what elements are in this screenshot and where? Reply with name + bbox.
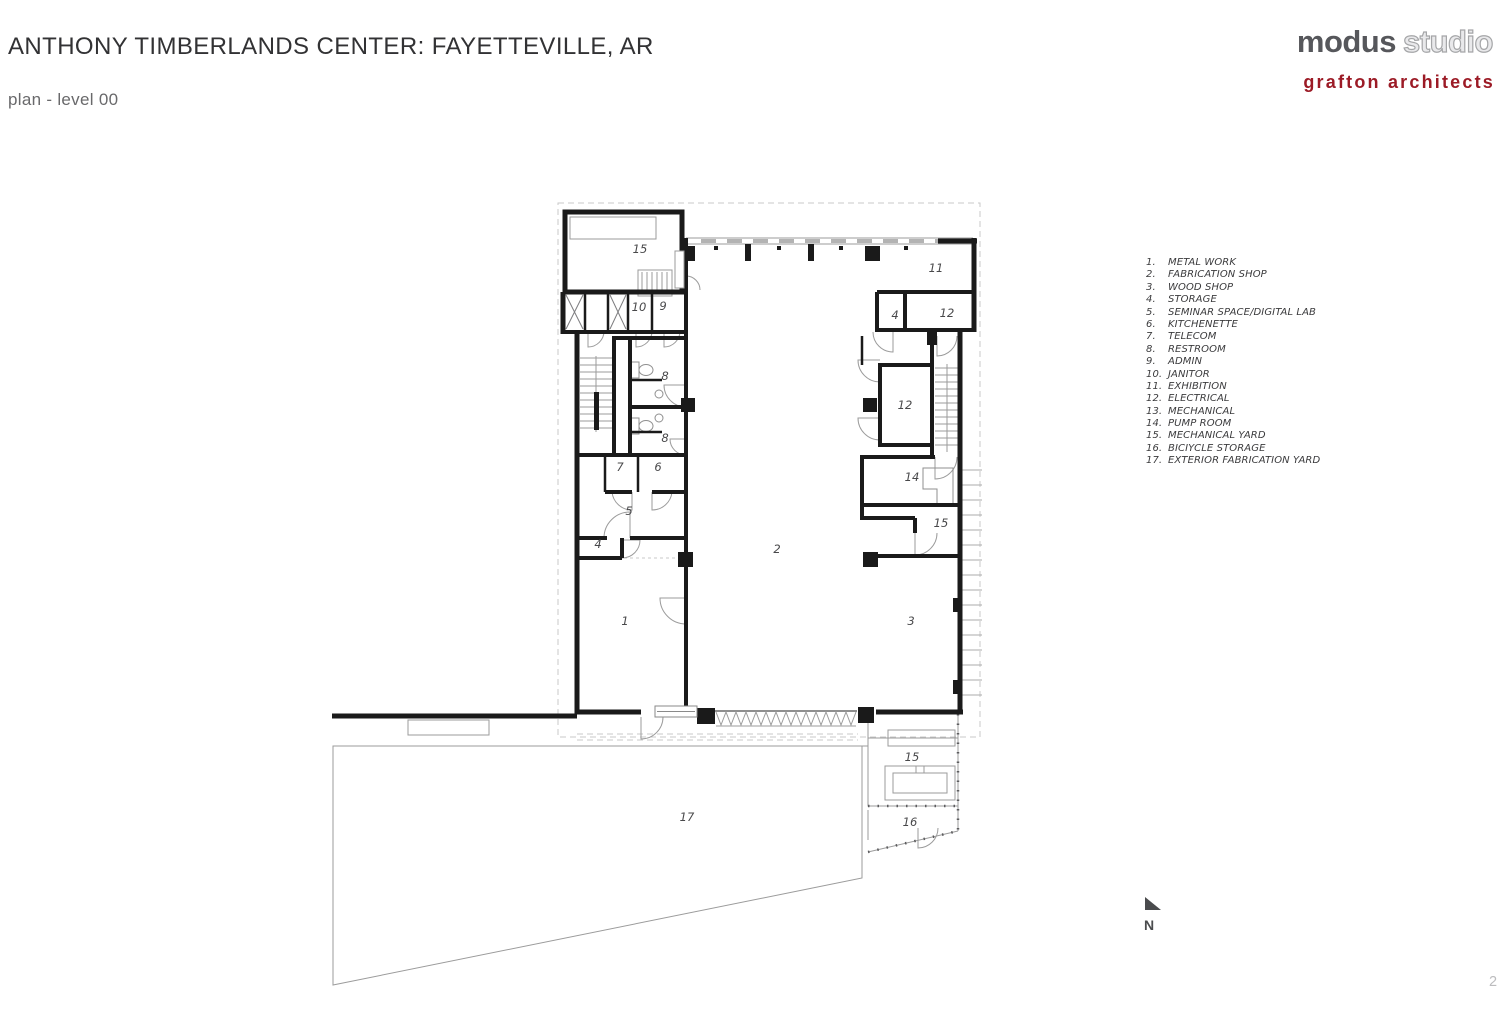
room-label: 16: [903, 815, 918, 829]
room-label: 15: [633, 242, 648, 256]
floor-plan-drawing: 1511109412812876145154213151716: [0, 0, 1512, 1027]
door-arcs: [588, 276, 957, 848]
north-arrow: N: [1144, 896, 1168, 933]
legend-item: 12.ELECTRICAL: [1146, 393, 1320, 405]
legend-item: 14.PUMP ROOM: [1146, 418, 1320, 430]
legend-item: 2.FABRICATION SHOP: [1146, 269, 1320, 281]
legend-item: 15.MECHANICAL YARD: [1146, 430, 1320, 442]
north-arrow-icon: [1144, 896, 1164, 912]
room-label: 6: [654, 460, 661, 474]
legend-item: 16.BICIYCLE STORAGE: [1146, 443, 1320, 455]
windows: [655, 251, 697, 717]
yard-lines: [333, 712, 958, 985]
legend-item-label: RESTROOM: [1168, 344, 1226, 356]
legend-item: 4.STORAGE: [1146, 294, 1320, 306]
legend-item: 3.WOOD SHOP: [1146, 282, 1320, 294]
legend-item-label: BICIYCLE STORAGE: [1168, 443, 1266, 455]
legend-item: 1.METAL WORK: [1146, 257, 1320, 269]
room-label: 4: [594, 537, 601, 551]
legend-item-label: FABRICATION SHOP: [1168, 269, 1267, 281]
legend-item-label: MECHANICAL YARD: [1168, 430, 1266, 442]
legend-item-number: 5.: [1146, 307, 1168, 319]
legend-item-number: 11.: [1146, 381, 1168, 393]
room-label: 17: [680, 810, 695, 824]
legend-item-label: SEMINAR SPACE/DIGITAL LAB: [1168, 307, 1316, 319]
legend-item-label: STORAGE: [1168, 294, 1217, 306]
north-window-wall: [686, 238, 973, 244]
east-louver-ticks: [962, 470, 982, 695]
room-label: 9: [659, 299, 666, 313]
legend-item-number: 15.: [1146, 430, 1168, 442]
legend-item: 11.EXHIBITION: [1146, 381, 1320, 393]
legend-item: 8.RESTROOM: [1146, 344, 1320, 356]
room-label: 8: [661, 431, 668, 445]
truss-door: [715, 711, 857, 726]
room-label: 3: [907, 614, 914, 628]
room-label: 12: [898, 398, 913, 412]
legend-item: 10.JANITOR: [1146, 369, 1320, 381]
room-label: 1: [621, 614, 628, 628]
legend-item-number: 12.: [1146, 393, 1168, 405]
legend-item-label: TELECOM: [1168, 331, 1217, 343]
legend-item-number: 1.: [1146, 257, 1168, 269]
screen-wall-ticks: [868, 714, 958, 852]
legend-item-label: ADMIN: [1168, 356, 1202, 368]
legend-item: 13.MECHANICAL: [1146, 406, 1320, 418]
legend-item-label: MECHANICAL: [1168, 406, 1235, 418]
louver-x-braces: [566, 295, 626, 329]
legend-item-number: 6.: [1146, 319, 1168, 331]
legend-item-label: JANITOR: [1168, 369, 1210, 381]
legend-item-number: 9.: [1146, 356, 1168, 368]
legend-item-label: KITCHENETTE: [1168, 319, 1238, 331]
legend-item-number: 16.: [1146, 443, 1168, 455]
legend-item: 6.KITCHENETTE: [1146, 319, 1320, 331]
legend-item-label: EXHIBITION: [1168, 381, 1227, 393]
legend-item-label: METAL WORK: [1168, 257, 1236, 269]
legend-item-number: 14.: [1146, 418, 1168, 430]
room-label: 10: [632, 300, 647, 314]
room-label: 11: [929, 261, 944, 275]
room-label: 15: [905, 750, 920, 764]
room-label: 7: [616, 460, 624, 474]
legend-item-label: WOOD SHOP: [1168, 282, 1233, 294]
legend-item-number: 7.: [1146, 331, 1168, 343]
legend-item-label: EXTERIOR FABRICATION YARD: [1168, 455, 1320, 467]
legend-item-number: 2.: [1146, 269, 1168, 281]
room-label: 15: [934, 516, 949, 530]
room-label: 4: [891, 308, 898, 322]
legend-item-number: 10.: [1146, 369, 1168, 381]
legend-item-label: ELECTRICAL: [1168, 393, 1230, 405]
room-label: 8: [661, 369, 668, 383]
room-label: 2: [773, 542, 780, 556]
room-legend: 1.METAL WORK2.FABRICATION SHOP3.WOOD SHO…: [1146, 257, 1320, 468]
room-label: 14: [905, 470, 920, 484]
legend-item: 5.SEMINAR SPACE/DIGITAL LAB: [1146, 307, 1320, 319]
legend-item: 9.ADMIN: [1146, 356, 1320, 368]
page-number: 2: [1489, 974, 1497, 990]
room-label: 5: [625, 504, 632, 518]
legend-item-label: PUMP ROOM: [1168, 418, 1231, 430]
legend-item-number: 8.: [1146, 344, 1168, 356]
legend-item: 7.TELECOM: [1146, 331, 1320, 343]
legend-item-number: 3.: [1146, 282, 1168, 294]
north-label: N: [1144, 917, 1168, 933]
legend-item-number: 13.: [1146, 406, 1168, 418]
room-label: 12: [940, 306, 955, 320]
legend-item-number: 17.: [1146, 455, 1168, 467]
legend-item: 17.EXTERIOR FABRICATION YARD: [1146, 455, 1320, 467]
legend-item-number: 4.: [1146, 294, 1168, 306]
